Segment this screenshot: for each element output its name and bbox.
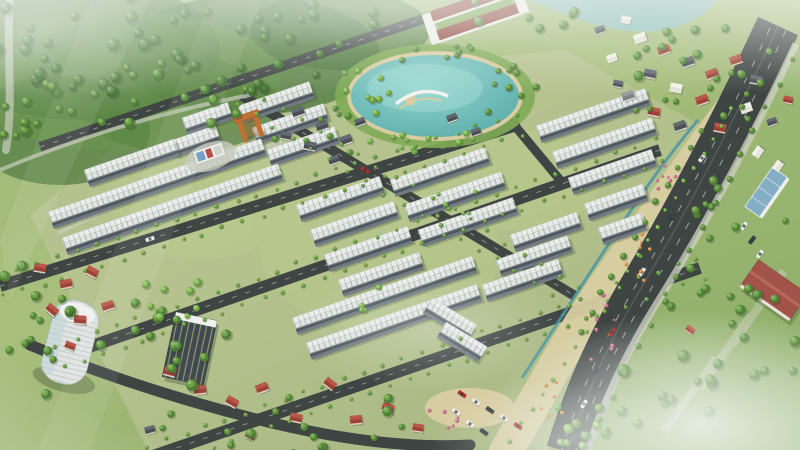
aerial-render [0, 0, 800, 450]
scene-svg [0, 0, 800, 450]
mist-overlays [0, 0, 800, 450]
